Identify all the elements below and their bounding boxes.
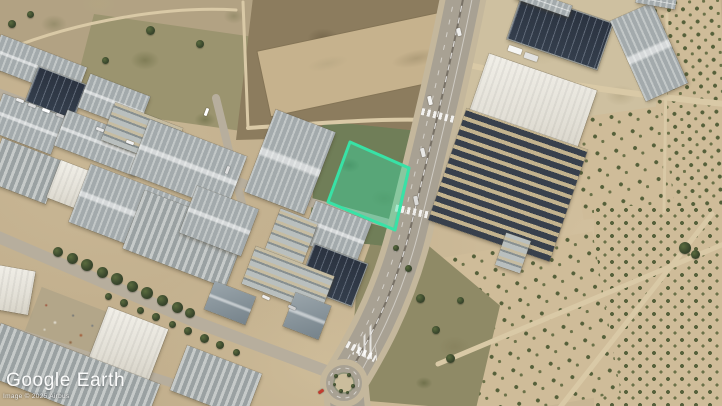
satellite-map-view[interactable]: Google Earth Image © 2025 Airbus xyxy=(0,0,722,406)
imagery-attribution: Image © 2025 Airbus xyxy=(3,393,70,400)
selection-overlay-layer xyxy=(0,0,722,406)
google-earth-logo: Google Earth xyxy=(6,371,125,390)
highlighted-parcel-polygon[interactable] xyxy=(328,142,409,230)
